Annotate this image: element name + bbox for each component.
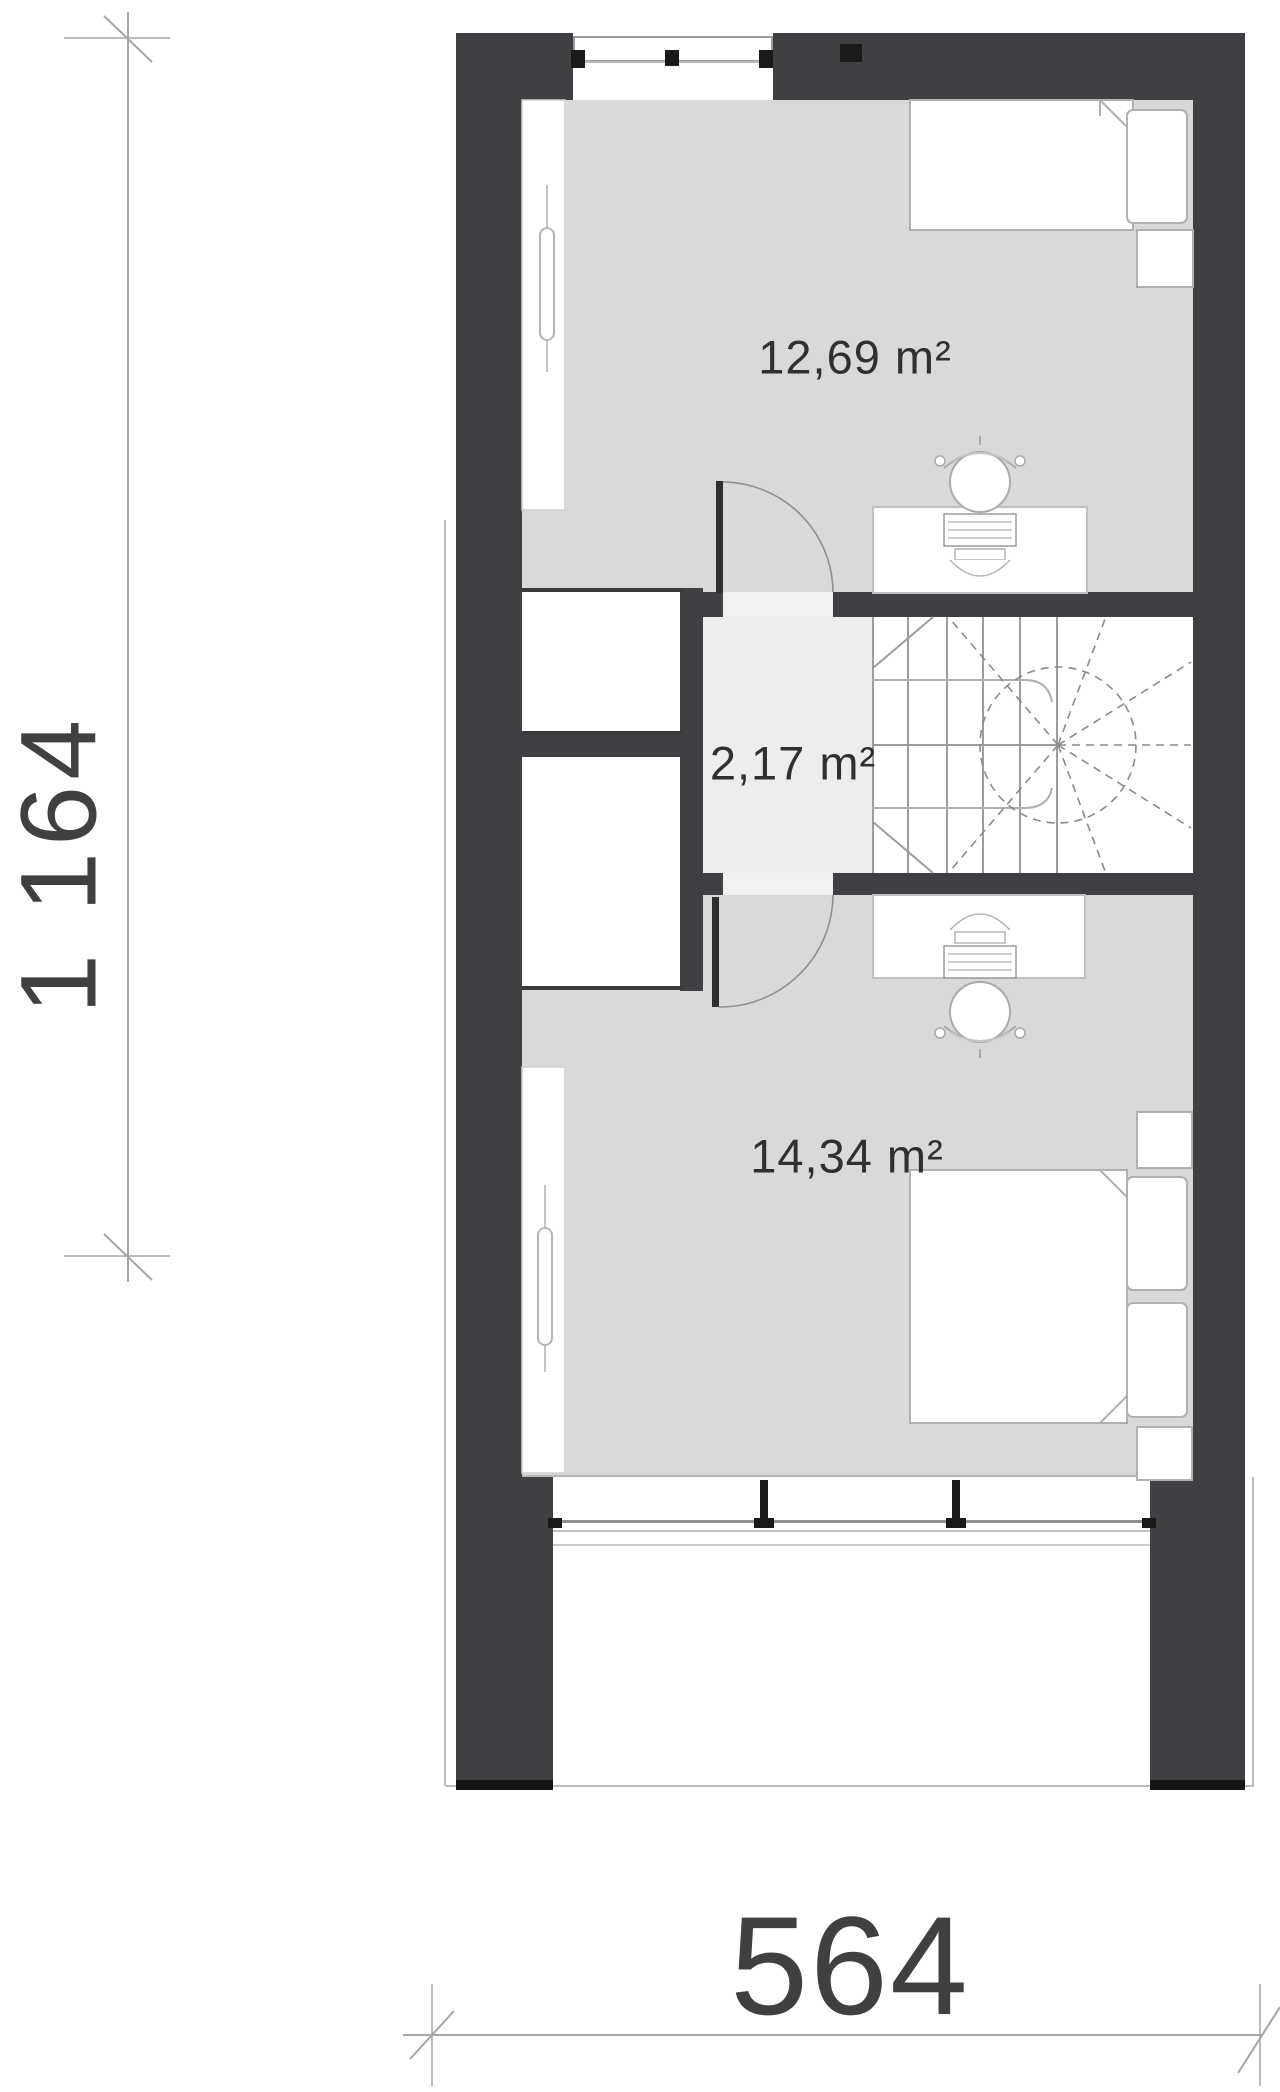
wall-cap-right — [1150, 1780, 1245, 1790]
chair-lower-armrest-right — [1015, 1028, 1025, 1038]
double-bed-pillow-2 — [1127, 1303, 1187, 1417]
laptop-upper-touchpad — [955, 549, 1005, 560]
laptop-lower-touchpad — [955, 932, 1005, 943]
wall-left-lower — [456, 1477, 553, 1782]
window-end-post-left — [548, 1518, 562, 1528]
recess-upper-top-edge — [522, 588, 683, 592]
nightstand-upper — [1137, 230, 1193, 287]
door-opening-upper — [723, 592, 833, 617]
window-band-frame-line2 — [553, 1530, 1150, 1532]
wall-between-recesses — [510, 735, 683, 757]
wall-right-lower — [1150, 1477, 1245, 1782]
single-bed-pillow — [1127, 110, 1187, 223]
wall-top-right-segment — [773, 33, 1245, 100]
room-area-label-lower: 14,34 m² — [750, 1129, 943, 1184]
wall-hallway-bottom — [833, 873, 1193, 895]
window-top-jamb-right — [759, 50, 773, 68]
recess-lower-bottom-edge — [522, 986, 683, 990]
chair-upper-seat — [950, 452, 1010, 512]
chair-upper-armrest-right — [1015, 456, 1025, 466]
recess-upper — [522, 592, 680, 735]
dimension-tick-h-right — [1238, 2007, 1280, 2073]
wall-marker-top — [840, 44, 862, 62]
window-left-lower — [522, 1067, 565, 1473]
nightstand-lower-2 — [1137, 1427, 1192, 1480]
window-mullion-1-foot — [754, 1518, 774, 1528]
nightstand-lower-1 — [1137, 1112, 1192, 1168]
window-left-upper — [522, 100, 565, 510]
wall-stub-lower-door — [700, 873, 723, 895]
window-band-outer-line — [553, 1544, 1150, 1546]
recess-lower — [522, 757, 680, 986]
wall-right-upper — [1193, 33, 1245, 1477]
window-end-post-right — [1142, 1518, 1156, 1528]
wall-stub-upper-door — [700, 592, 723, 617]
door-leaf-lower — [712, 897, 719, 1007]
chair-upper-armrest-left — [935, 456, 945, 466]
window-top-jamb-left — [571, 50, 585, 68]
window-left-lower-handle — [538, 1228, 552, 1345]
window-band-bottom — [522, 1475, 1193, 1547]
room-area-label-upper: 12,69 m² — [758, 330, 951, 385]
dimension-label-vertical: 1 164 — [0, 714, 121, 1014]
window-band-frame-line1 — [553, 1520, 1150, 1523]
floor-plan-canvas: 12,69 m² 2,17 m² 14,34 m² 1 164 564 — [0, 0, 1280, 2092]
reference-line-bottom — [446, 1785, 1254, 1787]
chair-lower-armrest-left — [935, 1028, 945, 1038]
window-band-opening — [553, 1477, 1150, 1547]
chair-lower-seat — [950, 982, 1010, 1042]
recess-upper-bottom-edge — [522, 731, 683, 735]
reference-line-right — [1252, 1477, 1254, 1786]
wall-bedroom-upper-bottom — [833, 592, 1193, 617]
door-opening-lower — [723, 873, 833, 895]
door-leaf-upper — [716, 481, 723, 593]
double-bed-pillow-1 — [1127, 1177, 1187, 1290]
window-left-upper-handle — [540, 228, 554, 340]
double-bed — [910, 1170, 1127, 1423]
dimension-label-horizontal: 564 — [730, 1885, 970, 2047]
floor-edge-line-bottom — [522, 1475, 1193, 1477]
wall-cap-left — [456, 1780, 553, 1790]
single-bed — [910, 100, 1133, 230]
recesses — [522, 588, 683, 990]
wall-hallway-left — [680, 588, 703, 991]
window-top-center-mullion — [665, 50, 679, 66]
room-area-label-hallway: 2,17 m² — [710, 736, 876, 791]
reference-line-left — [444, 520, 446, 1786]
window-mullion-2-foot — [946, 1518, 966, 1528]
